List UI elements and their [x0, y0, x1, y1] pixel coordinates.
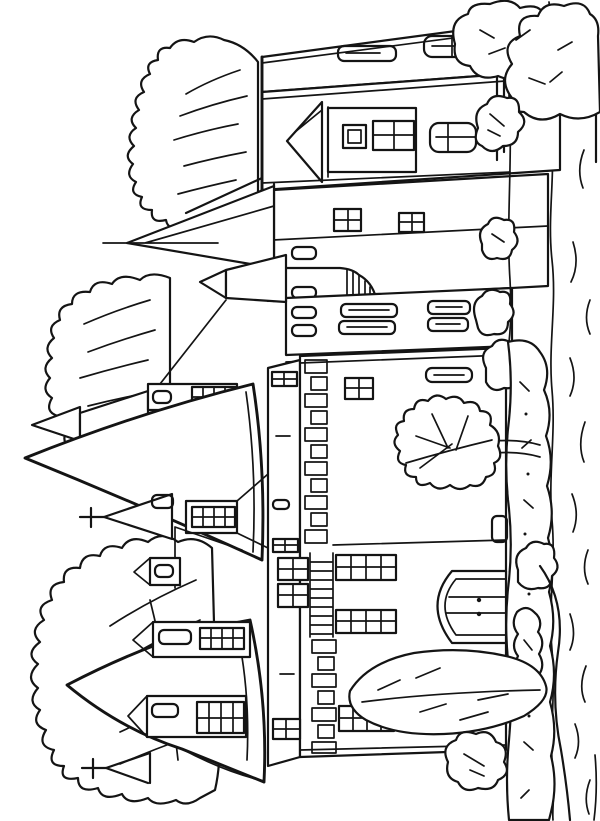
- steeple-window-small: [343, 125, 366, 148]
- door-handle-dot: [477, 612, 481, 616]
- hedge-dot: [524, 533, 527, 536]
- coloring-page: Black-and-white coloring page: a turrete…: [0, 0, 600, 821]
- coloring-page-canvas: Black-and-white coloring page: a turrete…: [0, 0, 600, 821]
- hedge-dot: [527, 473, 530, 476]
- round-bush: [516, 542, 557, 589]
- hedge-dot: [528, 715, 531, 718]
- hedge-dot: [525, 413, 528, 416]
- round-bush: [474, 290, 514, 335]
- arched-door: [438, 571, 507, 643]
- hedge-dot: [528, 593, 531, 596]
- door-handle-dot: [477, 598, 481, 602]
